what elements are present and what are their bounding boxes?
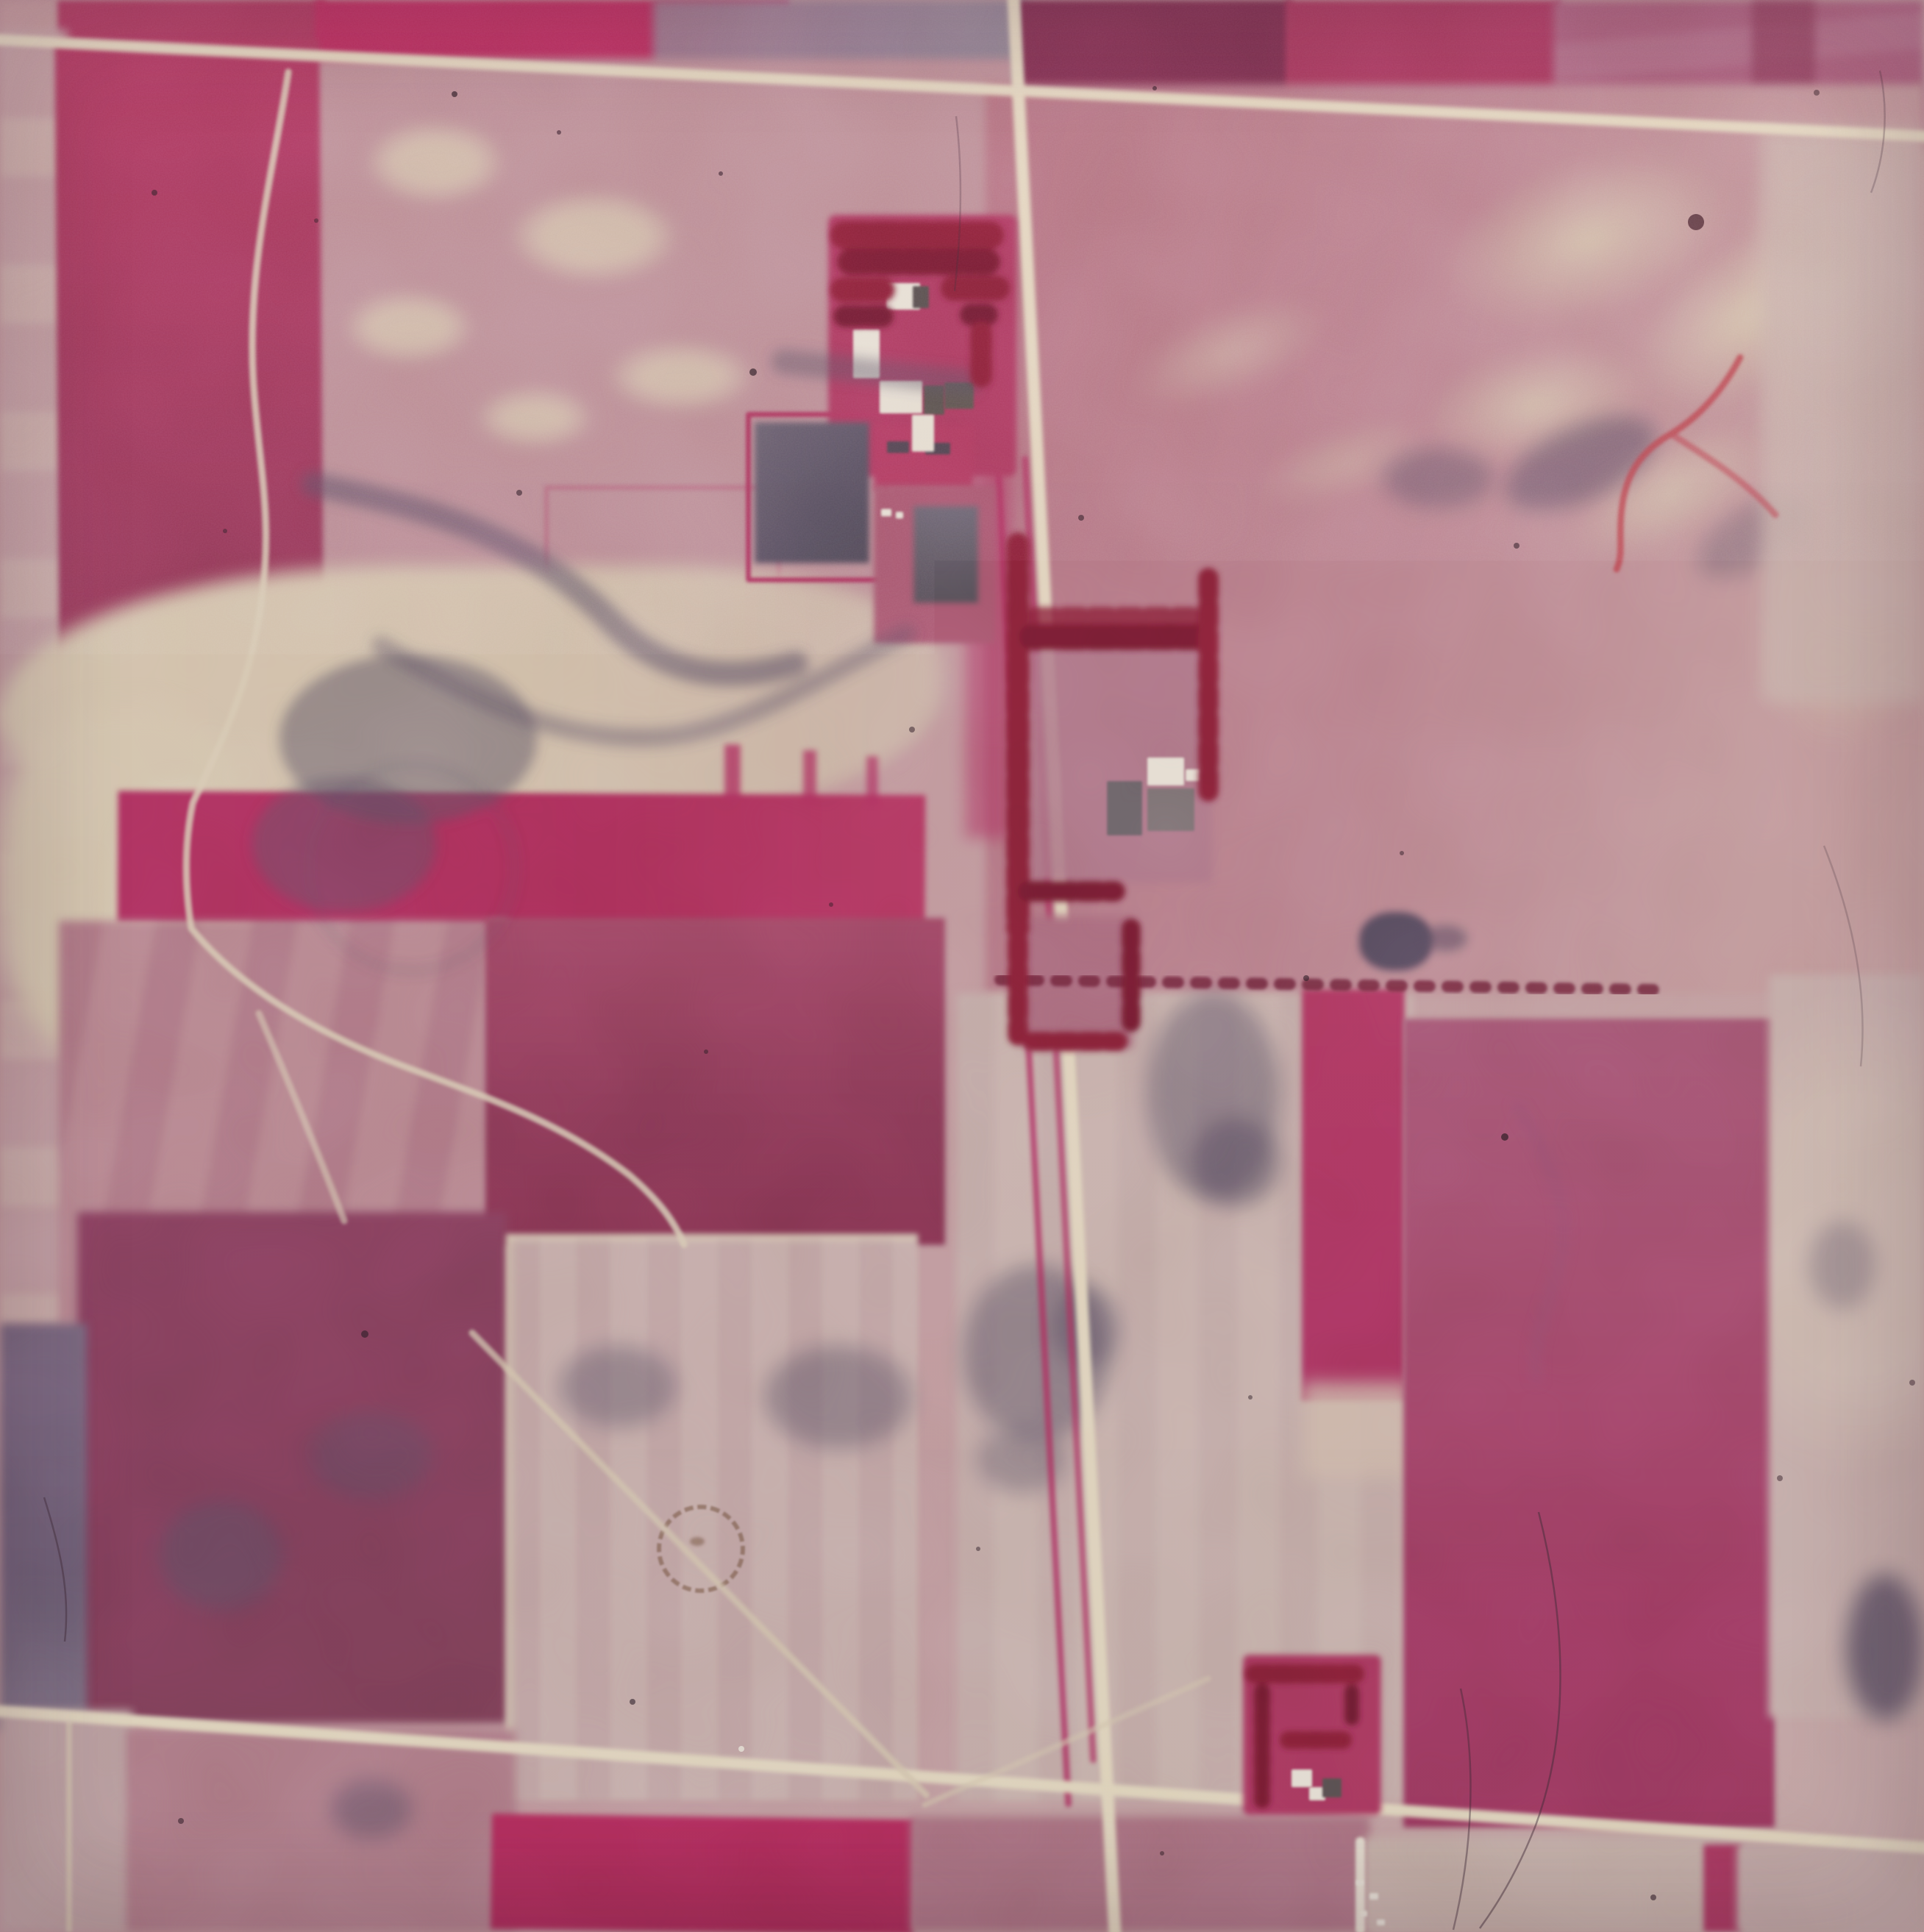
aerial-photo [0, 0, 1924, 1932]
vignette [0, 0, 1924, 1932]
